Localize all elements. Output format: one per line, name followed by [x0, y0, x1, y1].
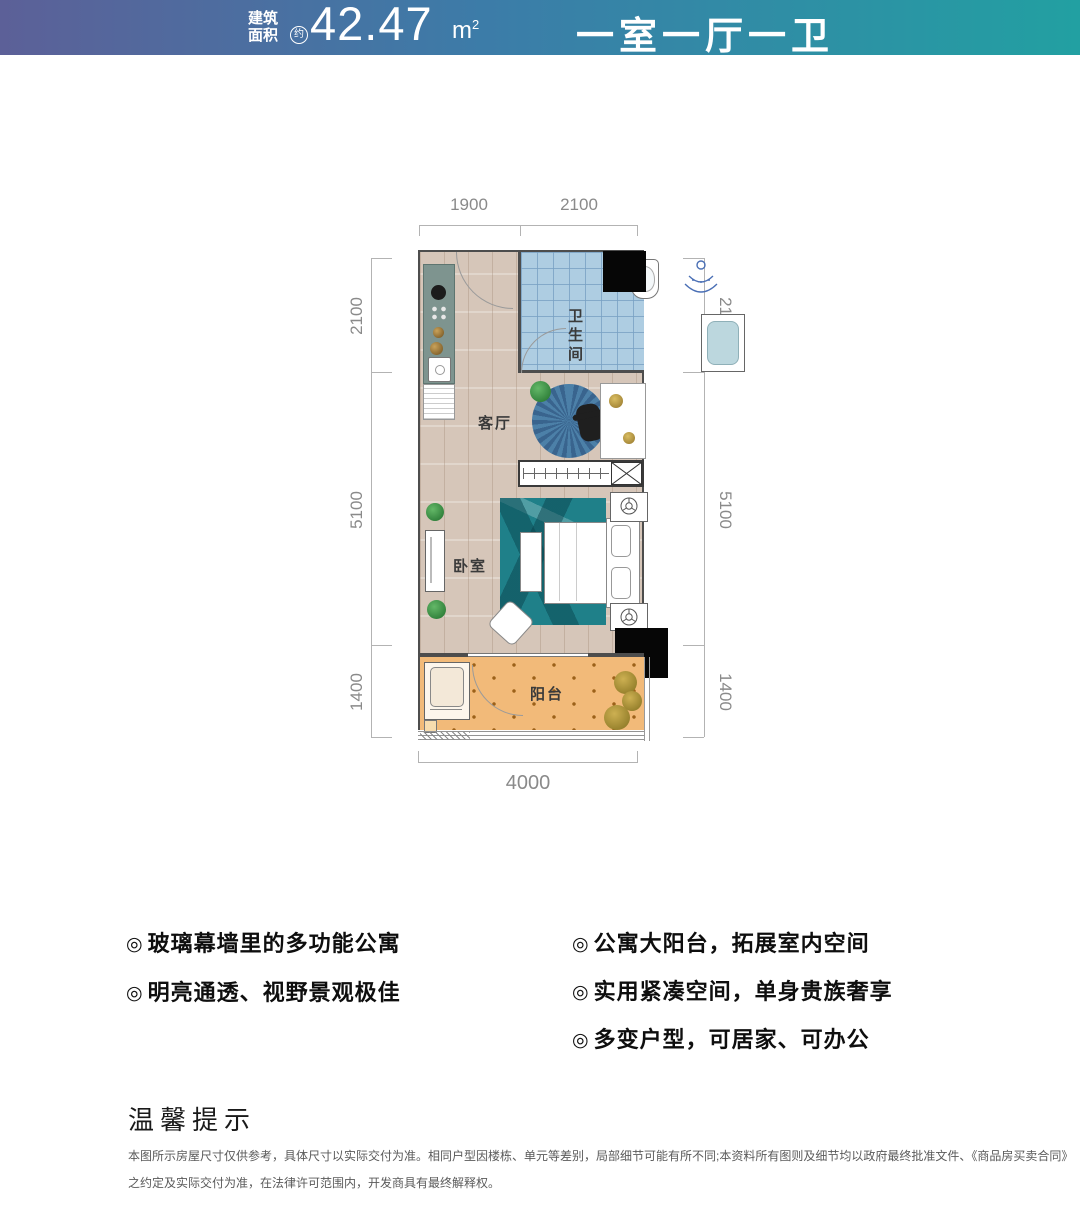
- dim-label-left-2: 5100: [347, 475, 367, 545]
- shower-icon: [679, 258, 723, 309]
- redacted-box: [603, 251, 646, 292]
- hatch-mark: [420, 732, 470, 740]
- feature-item: ◎公寓大阳台，拓展室内空间: [572, 926, 870, 958]
- living-room-label: 客厅: [478, 412, 512, 433]
- washing-machine-icon: [424, 662, 470, 720]
- hanger-rail-icon: [523, 473, 609, 474]
- plant-icon: [530, 381, 551, 402]
- wardrobe: [518, 460, 644, 487]
- dim-tick: [683, 645, 704, 646]
- floor-plan: 卫生间 客厅: [418, 250, 648, 744]
- tv-console: [425, 530, 445, 592]
- dim-tick: [637, 751, 638, 762]
- feature-text: 玻璃幕墙里的多功能公寓: [148, 931, 401, 956]
- dim-label-right-3: 1400: [715, 657, 735, 727]
- area-unit-exponent: 2: [472, 17, 479, 32]
- nightstand: [610, 492, 648, 522]
- pillow-icon: [611, 525, 631, 557]
- burners-icon: [430, 305, 448, 321]
- stove-icon: [431, 285, 446, 300]
- dim-tick: [371, 258, 392, 259]
- plant-icon: [604, 705, 630, 730]
- bed-headboard: [606, 518, 640, 608]
- bullet-icon: ◎: [126, 934, 144, 955]
- dim-tick: [418, 751, 419, 762]
- dim-label-left-1: 2100: [347, 281, 367, 351]
- dim-tick: [371, 645, 392, 646]
- dim-label-top-1: 1900: [434, 195, 504, 215]
- bullet-icon: ◎: [126, 983, 144, 1004]
- approx-badge: 约: [290, 26, 308, 44]
- desk-item-icon: [623, 432, 635, 444]
- dim-label-bottom: 4000: [493, 772, 563, 795]
- feature-item: ◎实用紧凑空间，单身贵族奢享: [572, 974, 893, 1006]
- kitchen-sink-icon: [428, 357, 451, 382]
- lamp-icon: [619, 496, 639, 521]
- desk-item-icon: [609, 394, 623, 408]
- plant-icon: [427, 600, 446, 619]
- feature-item: ◎玻璃幕墙里的多功能公寓: [126, 926, 401, 958]
- bed: [544, 522, 608, 604]
- feature-text: 多变户型，可居家、可办公: [594, 1027, 870, 1052]
- nightstand: [610, 603, 648, 631]
- page: 建筑 面积 约 42.47 m2 一室一厅一卫 1900 2100 4000 2…: [0, 0, 1080, 1213]
- bullet-icon: ◎: [572, 934, 590, 955]
- bathtub-icon: [701, 314, 745, 372]
- area-label: 建筑 面积: [248, 10, 278, 45]
- dim-tick: [637, 225, 638, 236]
- feature-text: 公寓大阳台，拓展室内空间: [594, 931, 870, 956]
- area-label-line1: 建筑: [248, 10, 278, 27]
- notice-title: 温馨提示: [128, 1100, 256, 1137]
- feature-item: ◎多变户型，可居家、可办公: [572, 1022, 870, 1054]
- header-banner: 建筑 面积 约 42.47 m2 一室一厅一卫: [0, 0, 1080, 55]
- kitchen-counter: [423, 264, 455, 384]
- plant-icon: [426, 503, 444, 521]
- dim-tick: [371, 737, 392, 738]
- area-label-line2: 面积: [248, 27, 278, 44]
- disclaimer-line2: 之约定及实际交付为准，在法律许可范围内，开发商具有最终解释权。: [128, 1170, 1068, 1197]
- feature-text: 明亮通透、视野景观极佳: [148, 980, 401, 1005]
- balcony-label: 阳台: [530, 683, 564, 704]
- dim-tick: [683, 372, 704, 373]
- dim-tick: [371, 372, 392, 373]
- bedroom-label: 卧室: [453, 555, 487, 576]
- dim-label-top-2: 2100: [544, 195, 614, 215]
- pillow-icon: [611, 567, 631, 599]
- feature-item: ◎明亮通透、视野景观极佳: [126, 975, 401, 1007]
- area-unit: m2: [452, 17, 479, 45]
- fridge-icon: [423, 384, 455, 420]
- dim-tick: [419, 225, 420, 236]
- dim-line: [418, 762, 638, 763]
- dim-line: [419, 225, 638, 226]
- area-unit-base: m: [452, 17, 472, 44]
- pot-icon: [430, 342, 443, 355]
- bed-bench: [520, 532, 542, 592]
- area-value: 42.47: [310, 0, 433, 51]
- cabinet-x-icon: [611, 462, 642, 490]
- pot-icon: [433, 327, 444, 338]
- disclaimer-line1: 本图所示房屋尺寸仅供参考，具体尺寸以实际交付为准。相同户型因楼栋、单元等差别，局…: [128, 1143, 1068, 1170]
- desk: [600, 383, 646, 459]
- balcony: 阳台: [420, 657, 644, 730]
- bullet-icon: ◎: [572, 1030, 590, 1051]
- dim-tick: [683, 737, 704, 738]
- dim-label-left-3: 1400: [347, 657, 367, 727]
- bullet-icon: ◎: [572, 982, 590, 1003]
- layout-title: 一室一厅一卫: [560, 5, 850, 60]
- dim-label-right-2: 5100: [715, 475, 735, 545]
- feature-text: 实用紧凑空间，单身贵族奢享: [594, 979, 893, 1004]
- dim-line: [371, 258, 372, 737]
- balcony-side-railing: [644, 657, 650, 741]
- dim-tick: [520, 225, 521, 236]
- bathroom-label: 卫生间: [564, 308, 585, 365]
